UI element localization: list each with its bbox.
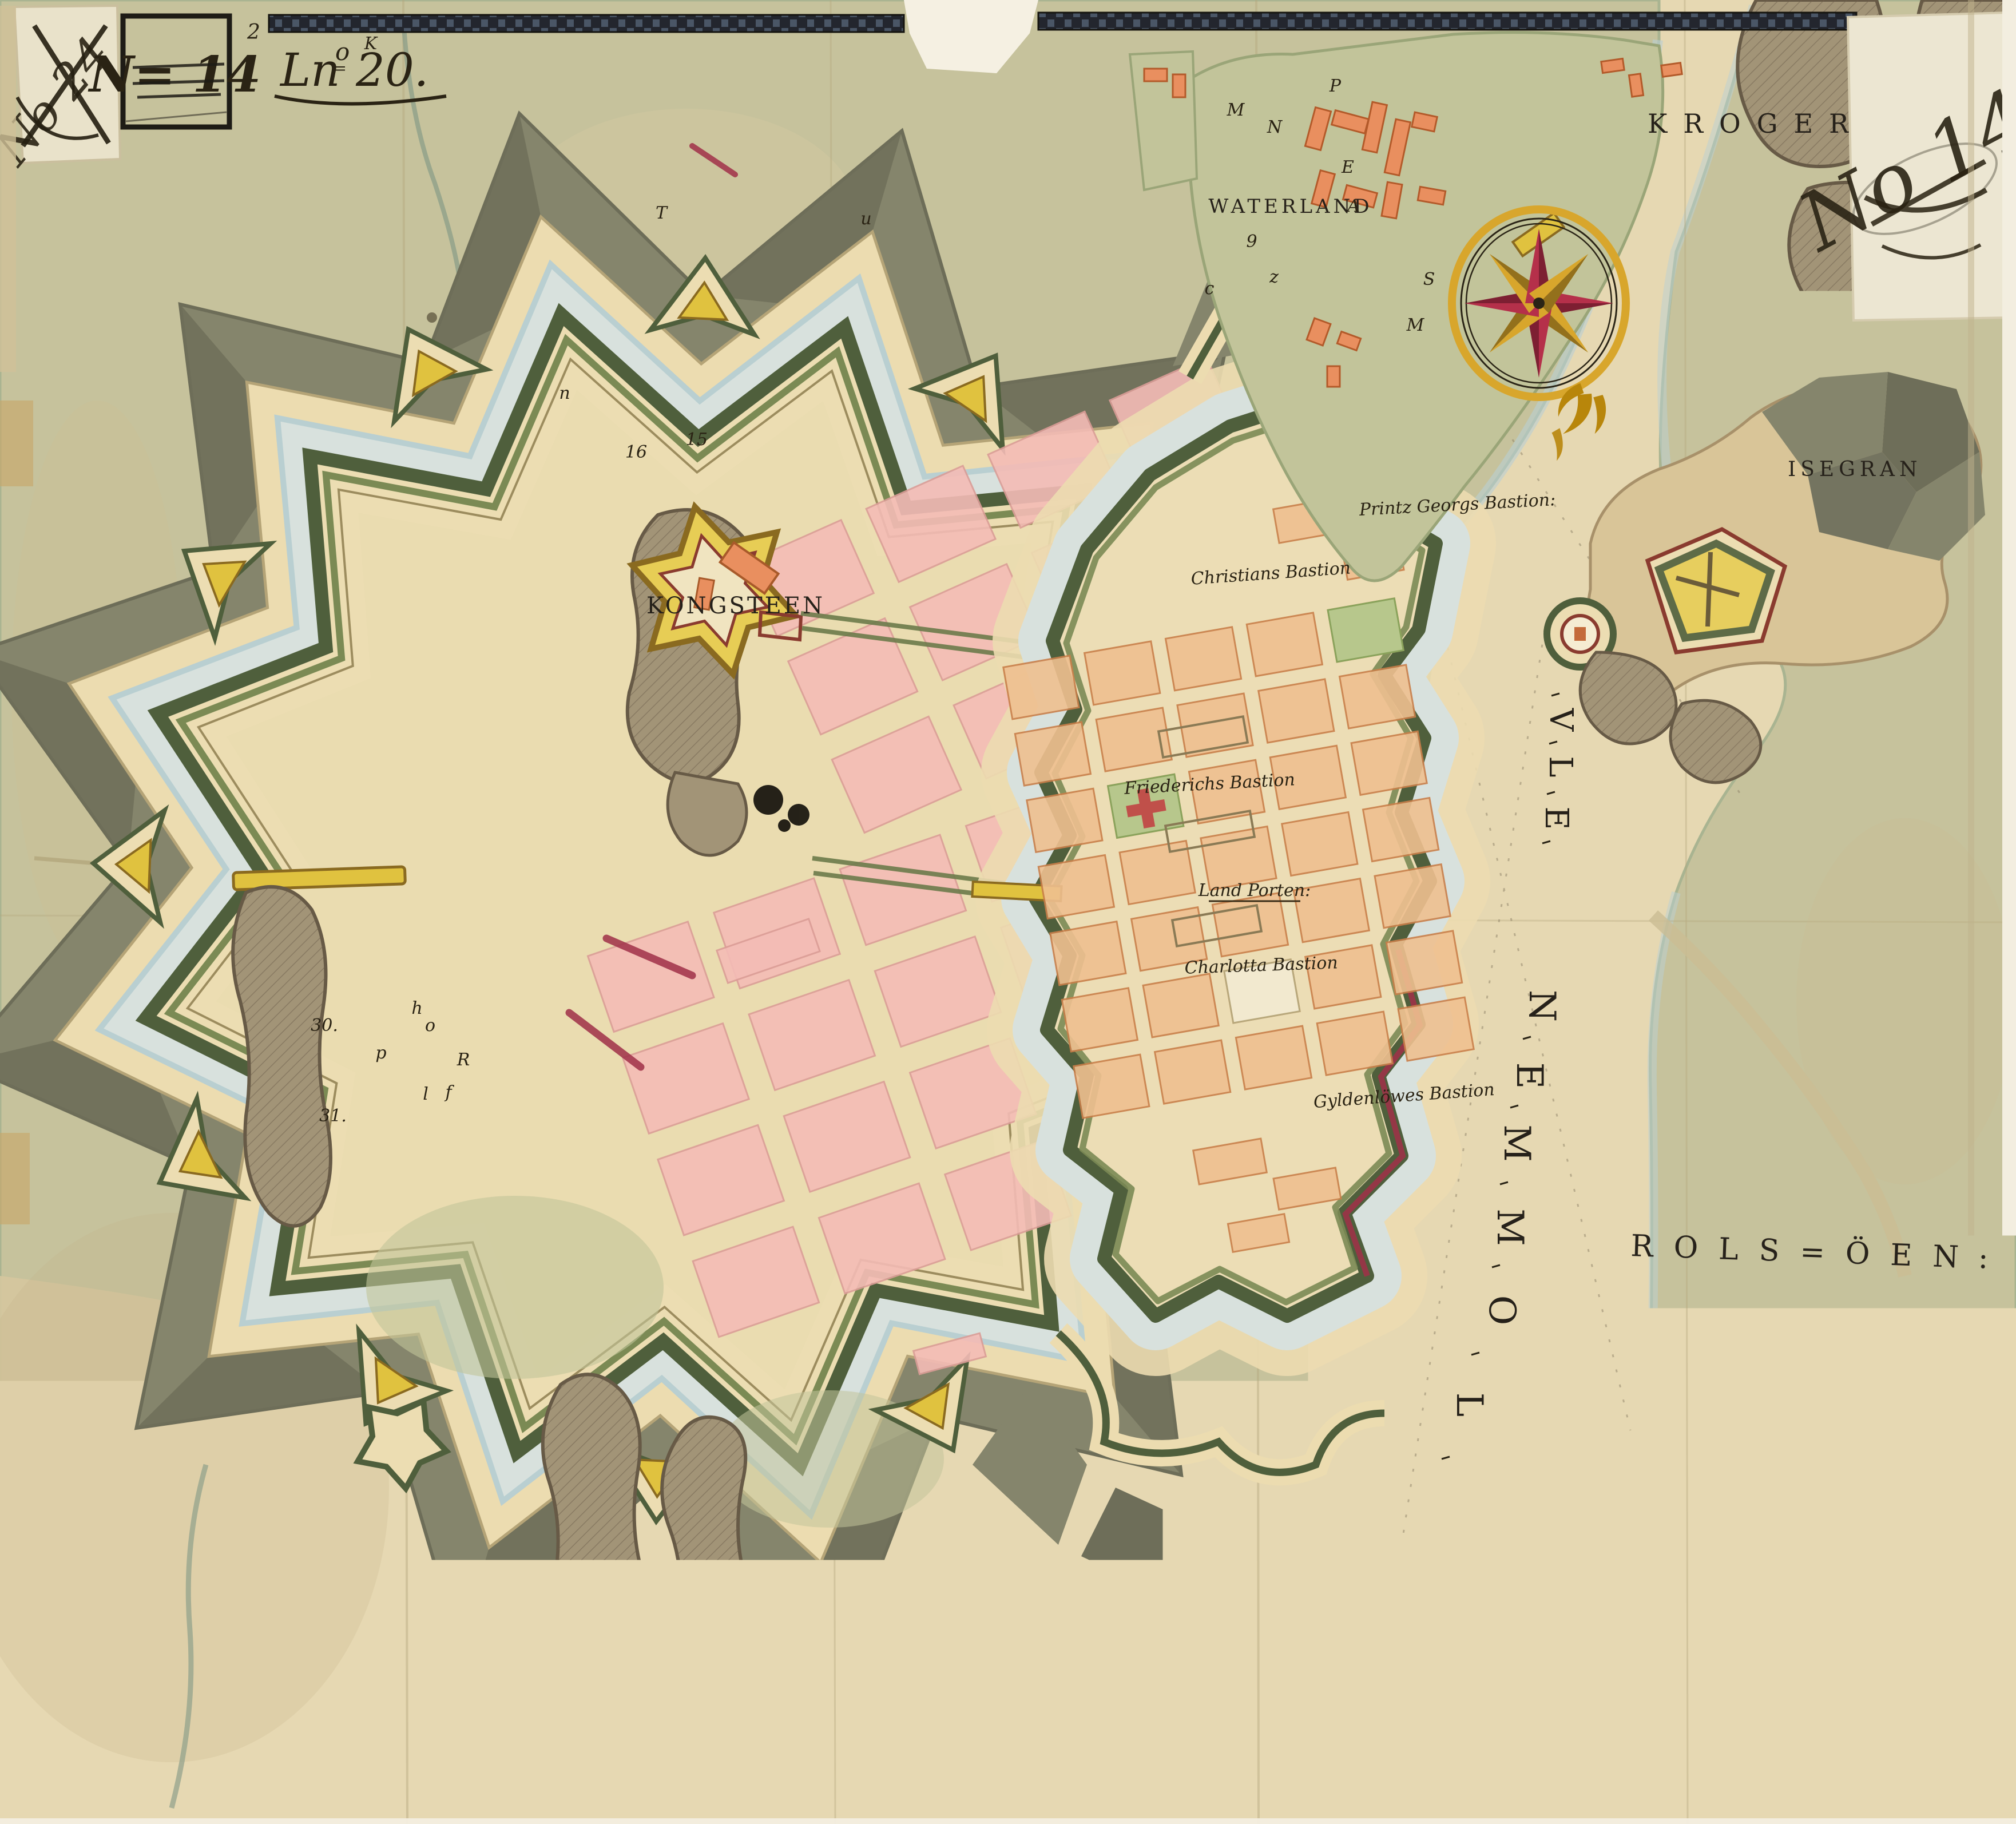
scale-tick-label: 30 — [1762, 1785, 1778, 1799]
town-block — [1375, 865, 1450, 928]
scale-tick-label: 0 — [1649, 1785, 1657, 1799]
town-block — [1038, 855, 1114, 918]
town-block — [1074, 1054, 1149, 1118]
label-isegran: ISEGRAN — [1788, 458, 1922, 481]
cartouche-number: No. 1. — [1730, 1744, 1805, 1771]
scale-tick-label: 10 — [1684, 1785, 1700, 1799]
reference-letter: S — [1423, 269, 1435, 290]
town-block — [1340, 665, 1415, 728]
town-block — [1282, 812, 1358, 875]
stamp-line1: NORGES GEOGRAFISKE OPMAALING — [1039, 1764, 1167, 1774]
list-eq: = — [334, 60, 347, 77]
reference-letter: l — [423, 1084, 428, 1104]
scale-tick-label: 20 — [1723, 1783, 1739, 1798]
town-block — [1247, 613, 1322, 676]
scale-tick-label: 5 — [1624, 1783, 1632, 1798]
town-block — [1351, 731, 1427, 795]
town-block — [1050, 922, 1126, 985]
river-letter: G — [1420, 1504, 1462, 1533]
reference-letter: N — [1267, 117, 1283, 137]
river-letter: N — [1521, 990, 1563, 1022]
town-block — [1387, 931, 1462, 994]
river-letter: M — [1489, 1208, 1531, 1246]
town-block — [1165, 627, 1241, 691]
interior-green — [366, 1196, 664, 1379]
town-block — [1015, 722, 1090, 786]
town-block — [1143, 974, 1219, 1037]
town-block — [1236, 1026, 1311, 1089]
reference-letter: M — [1406, 315, 1425, 335]
reference-letter: T — [656, 203, 668, 223]
river-letter: V — [1542, 708, 1580, 732]
town-block — [1027, 788, 1102, 852]
reference-letter: M — [1227, 100, 1245, 120]
town-block — [1259, 679, 1334, 743]
town-block — [1155, 1040, 1231, 1104]
stamp-number: 35 — [1149, 1777, 1166, 1794]
town-block — [1363, 798, 1439, 861]
cartouche-name: FRIDERICHSTAD: — [1647, 1658, 1914, 1687]
reference-letter: E — [1341, 157, 1354, 177]
town-block — [1085, 641, 1160, 705]
river-letter: O — [1481, 1295, 1523, 1325]
compass-rose — [1452, 209, 1626, 397]
town-block — [1003, 656, 1079, 719]
label-kongsteen: KONGSTEEN — [646, 593, 825, 619]
river-letter: E — [1538, 807, 1575, 830]
scale-tick-label: 10 — [1594, 1785, 1610, 1799]
reference-letter: R — [457, 1050, 470, 1070]
river-letter: E — [1508, 1062, 1550, 1089]
cartouche-line: Som henhører till det efter Kongelig All… — [1597, 1686, 2011, 1700]
map-sheet: G L O M M E N E L V KROGER = WATERLAND I… — [0, 0, 2016, 1824]
town-green-block — [1328, 598, 1403, 662]
reference-letter: 31. — [319, 1106, 347, 1126]
reference-letter: A — [1346, 196, 1360, 216]
reference-letter: 16 — [625, 442, 647, 462]
reference-letter: c — [1205, 279, 1215, 299]
town-block — [1212, 893, 1288, 957]
stamp-line2: SMAALENENES AMT — [1042, 1781, 1154, 1791]
reference-letter: n — [559, 383, 570, 403]
reference-letter: 9 — [1246, 232, 1257, 252]
reference-letter: 15 — [686, 430, 708, 450]
town-block — [1062, 988, 1137, 1052]
reference-letter: o — [425, 1016, 435, 1036]
reference-letter: P — [1329, 76, 1342, 96]
scale-tick-label: 40 — [1801, 1783, 1817, 1798]
list-number: Ln o = 20. — [275, 38, 446, 104]
river-letter: L — [1542, 756, 1579, 777]
list-prefix: Ln — [279, 43, 340, 97]
river-name-elv: E L V — [1538, 693, 1580, 843]
pencil-number: 2 — [247, 21, 260, 44]
reference-letter: 30. — [311, 1016, 338, 1036]
list-value: 20. — [355, 43, 428, 97]
river-letter: M — [1495, 1124, 1538, 1162]
bastion-label: Land Porten: — [1198, 881, 1311, 901]
fortress-map-svg: G L O M M E N E L V KROGER = WATERLAND I… — [0, 0, 2016, 1824]
town-block — [1317, 1012, 1392, 1075]
reference-letter: z — [1269, 267, 1279, 287]
river-letter: L — [1448, 1393, 1490, 1417]
reference-letter: p — [375, 1043, 386, 1063]
town-block — [1398, 997, 1474, 1061]
reference-letter: h — [411, 998, 422, 1018]
reference-letter: u — [860, 209, 871, 229]
